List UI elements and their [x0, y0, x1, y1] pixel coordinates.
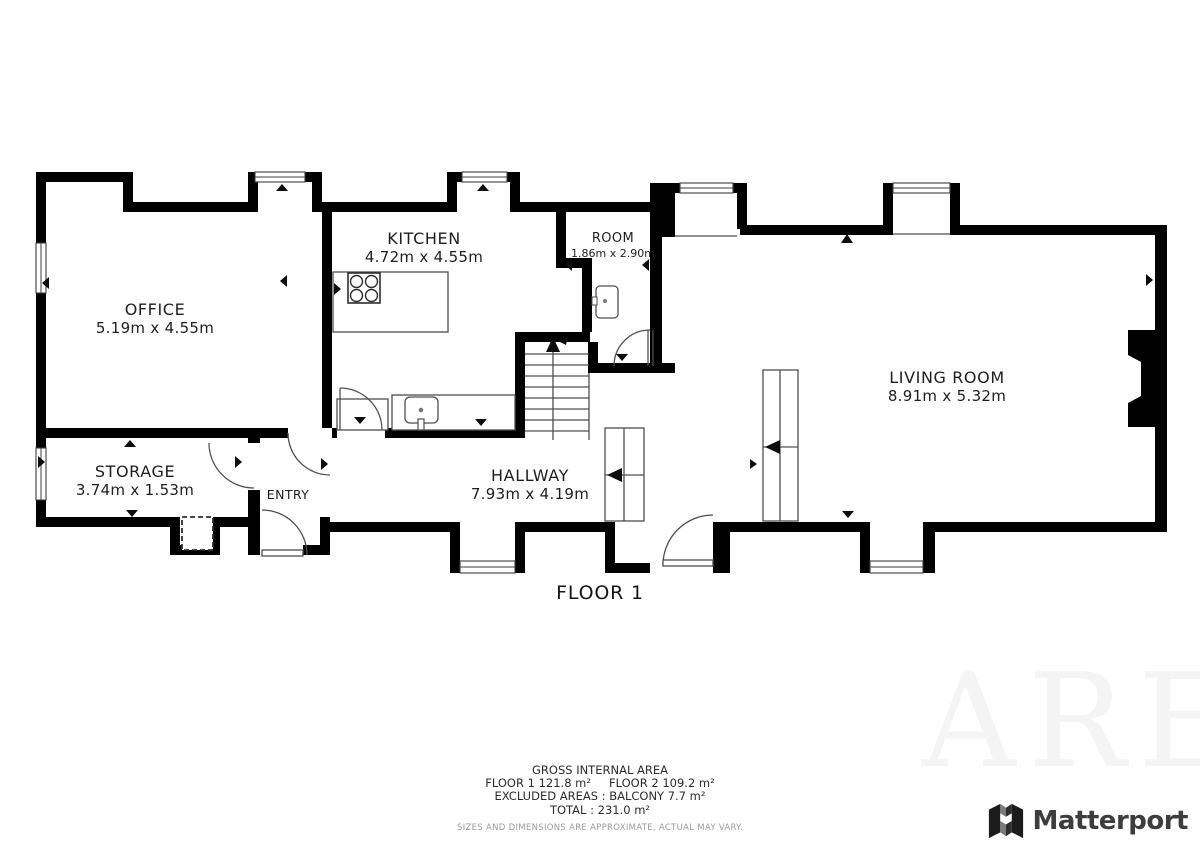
fireplace-opening — [1128, 355, 1141, 403]
staircase — [525, 335, 589, 440]
office-label: OFFICE — [125, 300, 186, 319]
living-room-dims: 8.91m x 5.32m — [888, 387, 1006, 405]
matterport-m-icon — [987, 802, 1025, 840]
window-storage-left — [36, 448, 46, 500]
office-dims: 5.19m x 4.55m — [96, 319, 214, 337]
storage-door-arc — [209, 443, 254, 488]
window-hallway-bottom — [460, 561, 515, 573]
marker-arrow-icon — [235, 456, 242, 468]
marker-arrow-icon — [126, 510, 138, 517]
marker-arrow-icon — [124, 440, 136, 447]
window-office-top — [255, 172, 305, 182]
floor-title: FLOOR 1 — [556, 582, 644, 604]
marker-arrow-icon — [642, 259, 649, 271]
window-bay-right — [893, 183, 950, 193]
kitchen-label: KITCHEN — [387, 229, 461, 248]
window-kitchen-top — [462, 172, 507, 182]
room-label: ROOM — [592, 231, 634, 246]
floorplan-page: { "floor_label": "FLOOR 1", "rooms": { "… — [0, 0, 1200, 848]
matterport-logo: Matterport — [987, 802, 1188, 840]
window-bay-left — [680, 183, 733, 193]
passage-openings — [605, 370, 798, 521]
kitchen-door — [337, 388, 388, 430]
marker-arrow-icon — [276, 184, 288, 191]
marker-arrow-icon — [841, 234, 853, 243]
marker-arrow-icon — [616, 354, 628, 361]
marker-arrow-icon — [321, 458, 328, 470]
marker-arrow-icon — [1146, 274, 1153, 286]
hallway-dims: 7.93m x 4.19m — [471, 485, 589, 503]
area-summary-title: GROSS INTERNAL AREA — [0, 764, 1200, 777]
office-door-arc — [288, 433, 330, 475]
room-dims: 1.86m x 2.90m — [571, 247, 655, 260]
marker-arrow-icon — [750, 459, 757, 469]
wc-sink-icon — [592, 286, 618, 318]
marker-arrow-icon — [842, 511, 854, 518]
entry-label: ENTRY — [267, 487, 309, 502]
entry-front-door — [262, 510, 307, 556]
matterport-logo-text: Matterport — [1033, 806, 1188, 836]
hallway-stair-opening — [605, 428, 644, 521]
storage-dims: 3.74m x 1.53m — [76, 481, 194, 499]
storage-label: STORAGE — [95, 462, 175, 481]
window-office-left — [36, 243, 46, 293]
kitchen-dims: 4.72m x 4.55m — [365, 248, 483, 266]
hallway-label: HALLWAY — [491, 466, 569, 485]
window-living-bottom — [870, 561, 923, 573]
marker-arrow-icon — [280, 275, 287, 287]
hallway-back-door — [663, 515, 713, 566]
marker-arrow-icon — [477, 184, 489, 191]
floorplan-drawing: OFFICE 5.19m x 4.55m KITCHEN 4.72m x 4.5… — [0, 0, 1200, 848]
living-room-label: LIVING ROOM — [889, 368, 1004, 387]
wc-fixtures — [592, 286, 618, 318]
wc-room-door — [614, 330, 653, 366]
stove-icon — [348, 273, 380, 303]
porch-dashed-outline — [182, 517, 213, 550]
hallway-living-opening — [763, 370, 798, 521]
